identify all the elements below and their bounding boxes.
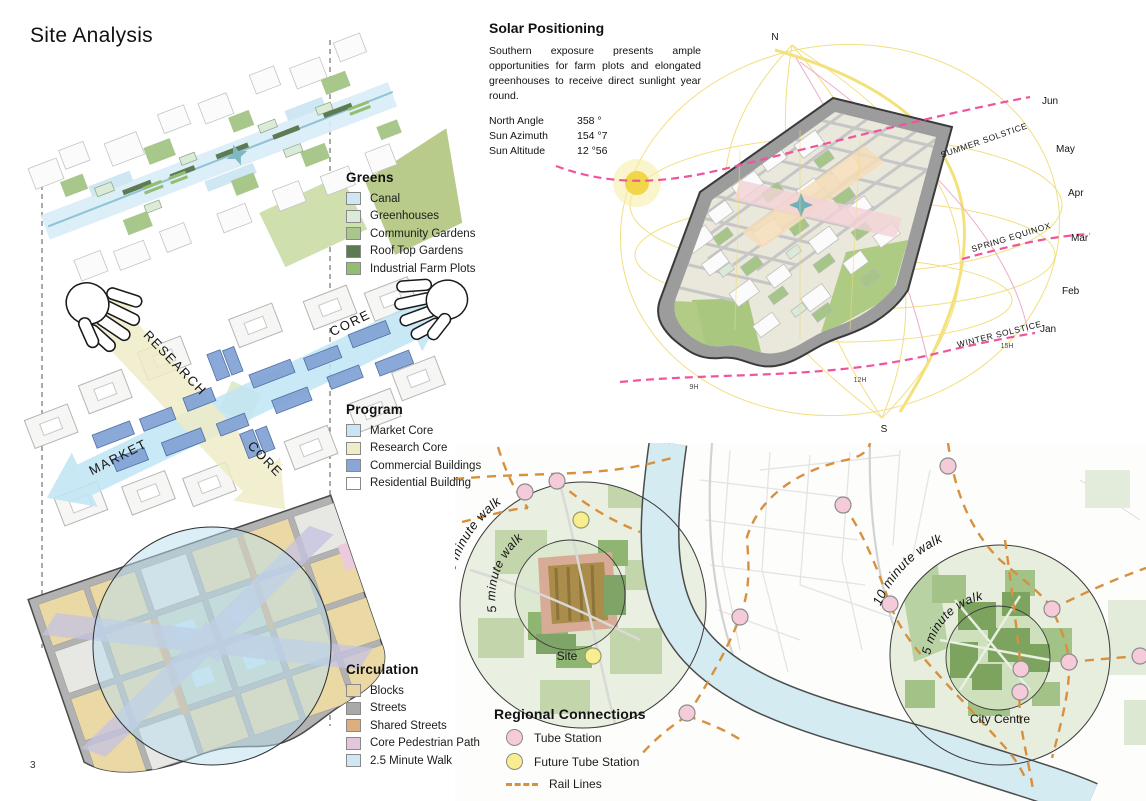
- canal-swatch: [346, 192, 361, 205]
- residential-building-swatch: [346, 477, 361, 490]
- tube-station-dot: [732, 609, 748, 625]
- north-label: N: [771, 32, 778, 43]
- core-pedestrian-path-swatch: [346, 737, 361, 750]
- svg-text:Feb: Feb: [1062, 286, 1080, 297]
- legend-row: Streets: [346, 702, 480, 715]
- legend-row: Residential Building: [346, 477, 481, 490]
- future-tube-station-dot: [573, 512, 589, 528]
- industrial-farm-plots-swatch: [346, 262, 361, 275]
- solar-positioning-panel: Solar Positioning Southern exposure pres…: [489, 20, 701, 157]
- svg-text:May: May: [1056, 144, 1075, 155]
- legend-row: Research Core: [346, 442, 481, 455]
- solar-stats: North Angle358 ° Sun Azimuth154 °7 Sun A…: [489, 115, 701, 157]
- market-core-swatch: [346, 424, 361, 437]
- legend-row: Rail Lines: [506, 777, 646, 791]
- tube-station-dot: [1044, 601, 1060, 617]
- svg-text:15H: 15H: [1001, 343, 1014, 350]
- stat-value: 12 °56: [577, 145, 701, 157]
- minute-walk-swatch: [346, 754, 361, 767]
- legend-row: Market Core: [346, 424, 481, 437]
- program-legend-title: Program: [346, 402, 481, 417]
- stat-value: 358 °: [577, 115, 701, 127]
- tube-station-dot: [940, 458, 956, 474]
- research-core-swatch: [346, 442, 361, 455]
- shared-streets-swatch: [346, 719, 361, 732]
- solar-description: Southern exposure presents ample opportu…: [489, 44, 701, 104]
- roof-top-gardens-swatch: [346, 245, 361, 258]
- solar-title: Solar Positioning: [489, 20, 701, 36]
- legend-row: Shared Streets: [346, 719, 480, 732]
- stat-label: North Angle: [489, 115, 577, 127]
- streets-swatch: [346, 702, 361, 715]
- svg-text:Jan: Jan: [1040, 324, 1056, 335]
- sun-marker: [613, 159, 661, 207]
- regional-connections-legend: Regional Connections Tube Station Future…: [494, 706, 646, 798]
- circulation-legend: Circulation Blocks Streets Shared Street…: [346, 662, 480, 772]
- month-labels: Jun May Apr Mar Feb Jan: [1040, 96, 1089, 335]
- legend-row: Community Gardens: [346, 227, 475, 240]
- program-legend: Program Market Core Research Core Commer…: [346, 402, 481, 494]
- legend-row: Blocks: [346, 684, 480, 697]
- greens-legend: Greens Canal Greenhouses Community Garde…: [346, 170, 475, 280]
- tube-station-dot: [1061, 654, 1077, 670]
- tube-station-dot: [1132, 648, 1146, 664]
- site-analysis-board: Site Analysis 3: [0, 0, 1146, 801]
- future-tube-station-dot: [585, 648, 601, 664]
- svg-text:12H: 12H: [854, 377, 867, 384]
- stat-label: Sun Azimuth: [489, 130, 577, 142]
- legend-row: Core Pedestrian Path: [346, 737, 480, 750]
- tube-station-dot: [835, 497, 851, 513]
- legend-row: Roof Top Gardens: [346, 245, 475, 258]
- tube-station-dot: [549, 473, 565, 489]
- svg-text:Jun: Jun: [1042, 96, 1058, 107]
- legend-row: Future Tube Station: [506, 753, 646, 770]
- legend-row: Greenhouses: [346, 210, 475, 223]
- svg-text:9H: 9H: [690, 384, 699, 391]
- stat-value: 154 °7: [577, 130, 701, 142]
- stat-label: Sun Altitude: [489, 145, 577, 157]
- svg-text:Mar: Mar: [1071, 233, 1089, 244]
- legend-row: 2.5 Minute Walk: [346, 754, 480, 767]
- walk-radius-circle: [93, 527, 331, 765]
- winter-solstice-label: WINTER SOLSTICE: [956, 319, 1043, 350]
- commercial-buildings-swatch: [346, 459, 361, 472]
- community-gardens-swatch: [346, 227, 361, 240]
- site-label: Site: [557, 649, 578, 663]
- tube-station-dot: [517, 484, 533, 500]
- circulation-legend-title: Circulation: [346, 662, 480, 677]
- regional-legend-title: Regional Connections: [494, 706, 646, 722]
- tube-station-dot: [1013, 661, 1029, 677]
- south-label: S: [881, 424, 888, 435]
- blocks-swatch: [346, 684, 361, 697]
- future-tube-station-swatch: [506, 753, 523, 770]
- greenhouses-swatch: [346, 210, 361, 223]
- legend-row: Industrial Farm Plots: [346, 262, 475, 275]
- tube-station-dot: [679, 705, 695, 721]
- city-centre-label: City Centre: [970, 712, 1030, 726]
- rail-lines-swatch: [506, 783, 538, 786]
- legend-row: Tube Station: [506, 729, 646, 746]
- tube-station-swatch: [506, 729, 523, 746]
- tube-station-dot: [1012, 684, 1028, 700]
- legend-row: Canal: [346, 192, 475, 205]
- greens-legend-title: Greens: [346, 170, 475, 185]
- svg-text:Apr: Apr: [1068, 188, 1084, 199]
- legend-row: Commercial Buildings: [346, 459, 481, 472]
